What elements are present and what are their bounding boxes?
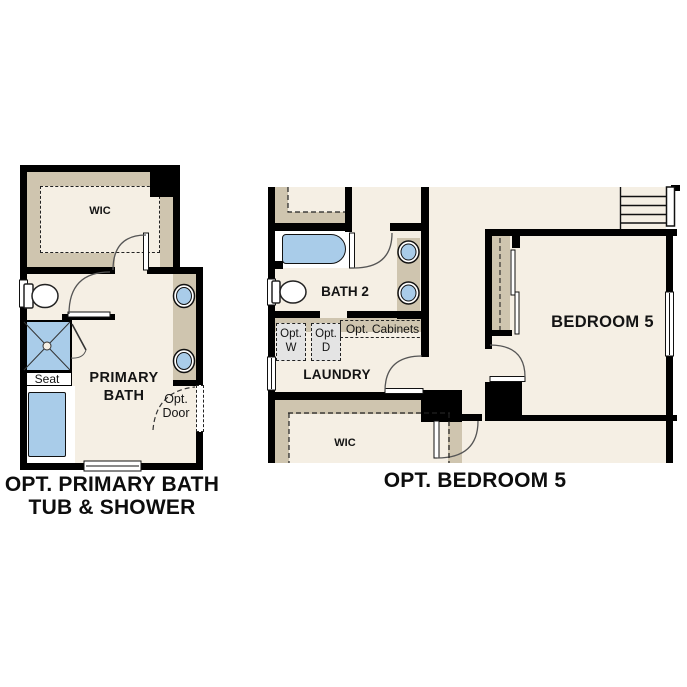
wall xyxy=(268,187,275,463)
wall xyxy=(485,382,522,416)
opt-cabinets-label: Opt. Cabinets xyxy=(340,322,425,336)
opt-dryer-label: Opt. D xyxy=(311,327,341,355)
bedroom5-room-label: BEDROOM 5 xyxy=(520,313,685,332)
wall xyxy=(268,311,320,318)
wall xyxy=(485,330,512,336)
wall xyxy=(275,261,283,269)
wic-floor xyxy=(40,186,160,253)
left-plan-caption: OPT. PRIMARY BATH TUB & SHOWER xyxy=(2,473,222,519)
opt-w-line1: Opt. xyxy=(276,327,306,341)
wic-shelving xyxy=(275,414,289,463)
left-caption-line2: TUB & SHOWER xyxy=(2,496,222,519)
wall xyxy=(147,267,203,274)
wic-floor xyxy=(115,253,160,267)
primary-bath-line1: PRIMARY xyxy=(64,369,184,387)
wall xyxy=(512,236,520,248)
wall xyxy=(671,185,680,191)
wic-room-label: WIC xyxy=(60,205,140,217)
bathtub-fixture xyxy=(28,392,66,457)
opt-door-line1: Opt. xyxy=(156,393,196,407)
floorplan-canvas: WIC PRIMARY BATH Seat Opt. Door OPT. PRI… xyxy=(0,0,687,687)
wall xyxy=(62,314,115,320)
wall xyxy=(421,390,462,422)
wall xyxy=(20,165,27,470)
opt-door-line2: Door xyxy=(156,407,196,421)
seat-label: Seat xyxy=(22,372,72,386)
opt-d-line2: D xyxy=(311,341,341,355)
wall xyxy=(462,414,482,421)
wall xyxy=(666,229,673,463)
wall xyxy=(268,392,430,400)
optional-door-opening xyxy=(196,385,204,432)
wall xyxy=(485,229,677,236)
wall xyxy=(173,165,180,273)
wic-room-label: WIC xyxy=(315,437,375,449)
shower-fixture xyxy=(22,320,72,372)
wall xyxy=(196,273,203,385)
opt-d-line1: Opt. xyxy=(311,327,341,341)
optional-door-label: Opt. Door xyxy=(156,393,196,420)
bathtub-fixture xyxy=(282,234,346,264)
left-caption-line1: OPT. PRIMARY BATH xyxy=(2,473,222,496)
vanity-counter xyxy=(173,273,196,380)
laundry-room-label: LAUNDRY xyxy=(287,367,387,382)
vanity-counter xyxy=(397,238,420,312)
wall xyxy=(347,311,428,318)
wall xyxy=(20,463,203,470)
wall xyxy=(275,223,352,231)
right-plan-caption: OPT. BEDROOM 5 xyxy=(320,469,630,492)
wall xyxy=(485,415,677,421)
bedroom-closet-shelving xyxy=(492,236,510,332)
opt-washer-label: Opt. W xyxy=(276,327,306,355)
wall xyxy=(20,267,115,274)
bath2-room-label: BATH 2 xyxy=(305,284,385,299)
opt-w-line2: W xyxy=(276,341,306,355)
